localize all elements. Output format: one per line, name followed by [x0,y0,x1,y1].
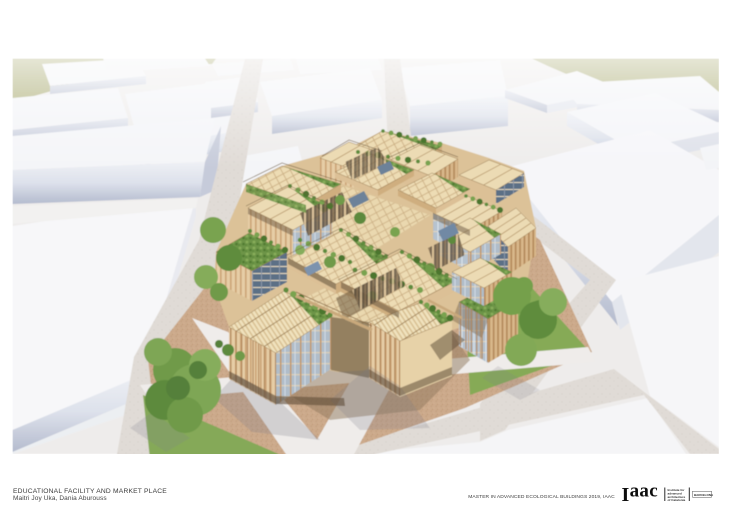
svg-text:BARCELONA: BARCELONA [694,493,714,497]
svg-text:Iaac: Iaac [622,480,658,506]
svg-text:of Catalonia: of Catalonia [668,498,686,502]
